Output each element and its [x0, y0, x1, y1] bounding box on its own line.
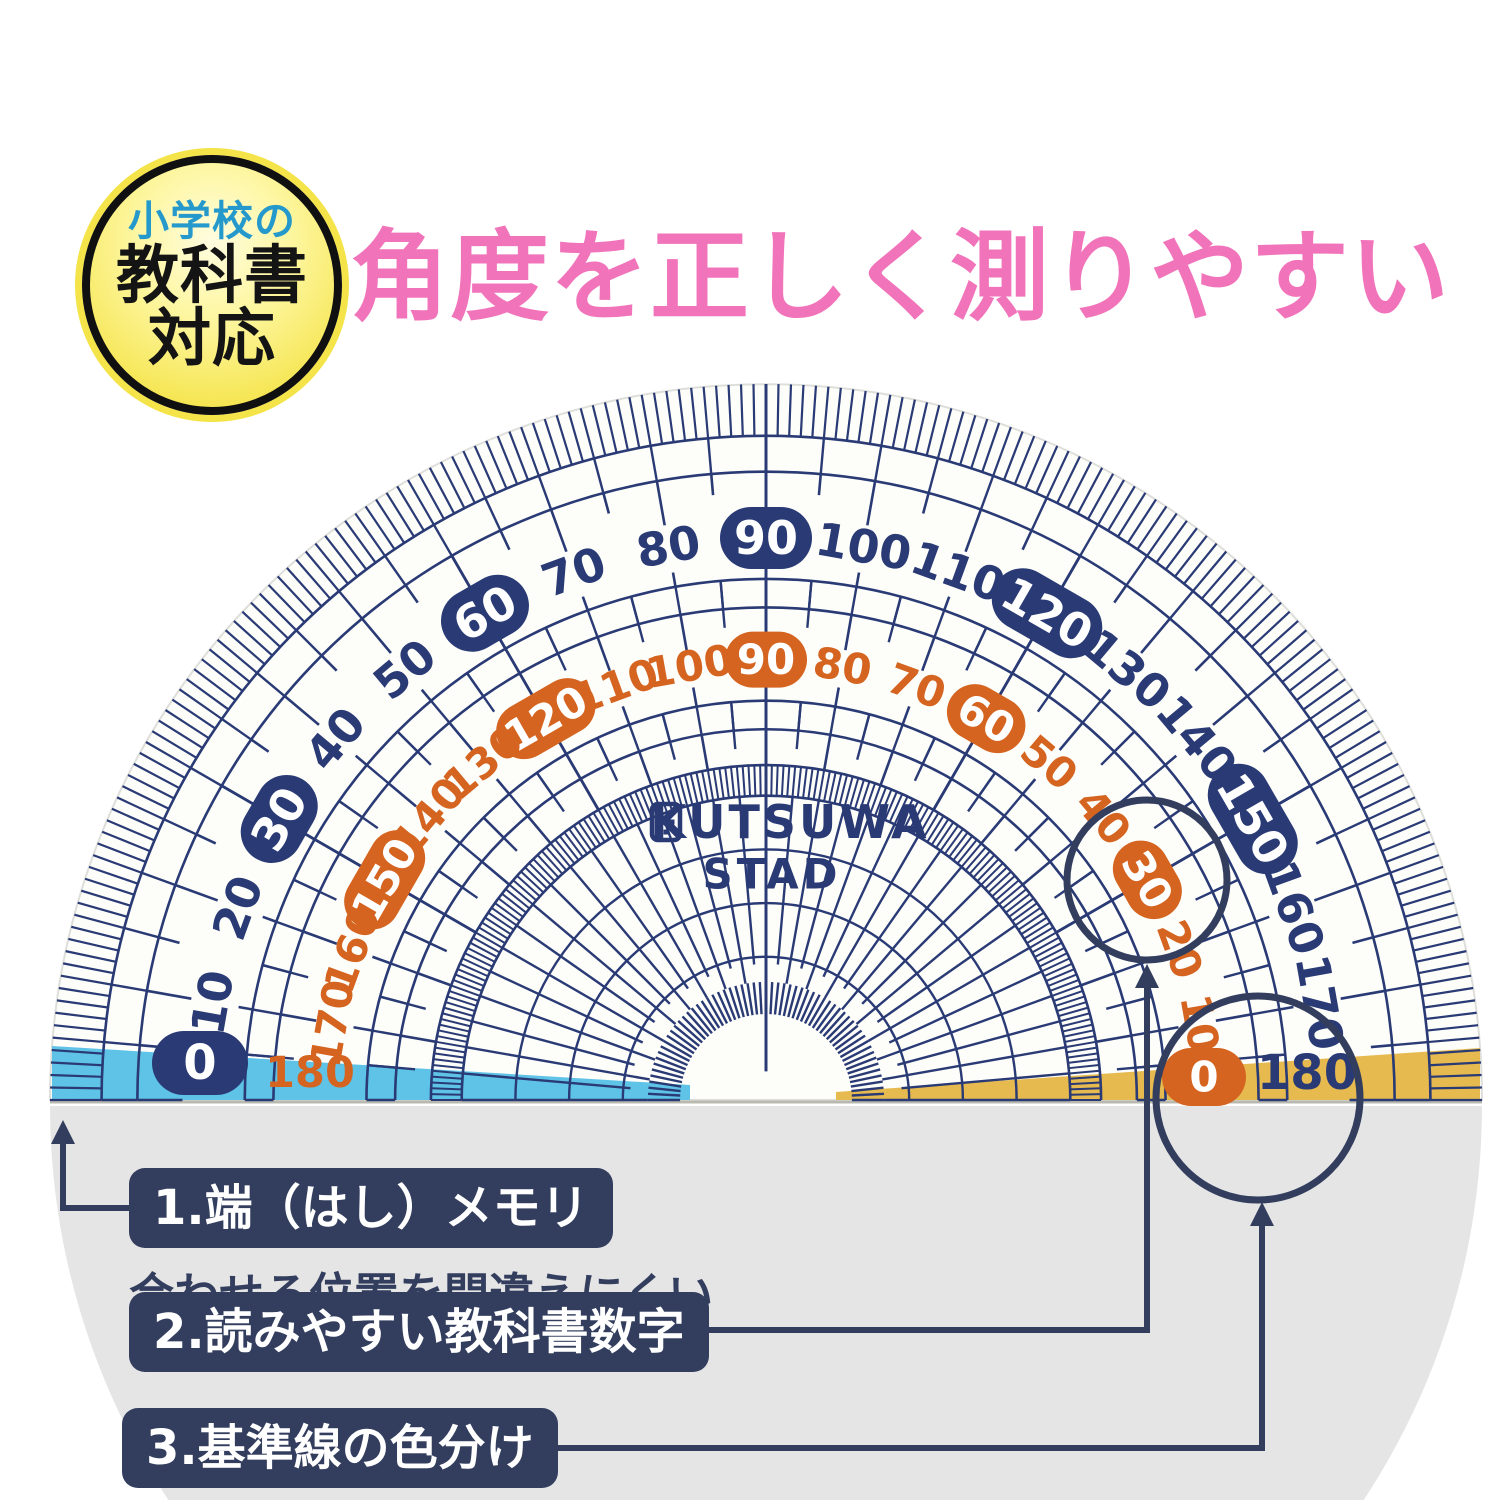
- annotation-2-label: 2.読みやすい教科書数字: [129, 1292, 709, 1372]
- scale-badge: 90: [725, 632, 807, 688]
- scale-badge: 0: [1162, 1048, 1246, 1106]
- svg-text:KUTSUWA: KUTSUWA: [650, 795, 929, 849]
- svg-text:180: 180: [1257, 1045, 1357, 1101]
- badge-line2: 教科書: [116, 244, 308, 307]
- scale-badge: 90: [720, 507, 812, 569]
- svg-text:80: 80: [632, 514, 704, 578]
- badge-line1: 小学校の: [128, 200, 296, 243]
- svg-text:0: 0: [1189, 1053, 1218, 1102]
- svg-text:STAD: STAD: [702, 850, 841, 899]
- page: 0102030405060708090100110120130140150160…: [0, 0, 1500, 1500]
- svg-text:0: 0: [183, 1035, 216, 1091]
- textbook-compatible-badge: 小学校の 教科書 対応: [82, 155, 342, 415]
- annotation-1-label: 1.端（はし）メモリ: [129, 1168, 613, 1248]
- svg-text:10: 10: [180, 966, 244, 1038]
- scale-badge: 0: [152, 1031, 248, 1095]
- svg-text:180: 180: [265, 1048, 355, 1098]
- svg-text:90: 90: [734, 511, 798, 565]
- badge-line3: 対応: [148, 307, 276, 370]
- svg-text:90: 90: [737, 635, 795, 684]
- page-title: 角度を正しく測りやすい: [350, 196, 1450, 340]
- svg-text:80: 80: [809, 637, 875, 695]
- annotation-3-label: 3.基準線の色分け: [122, 1408, 558, 1488]
